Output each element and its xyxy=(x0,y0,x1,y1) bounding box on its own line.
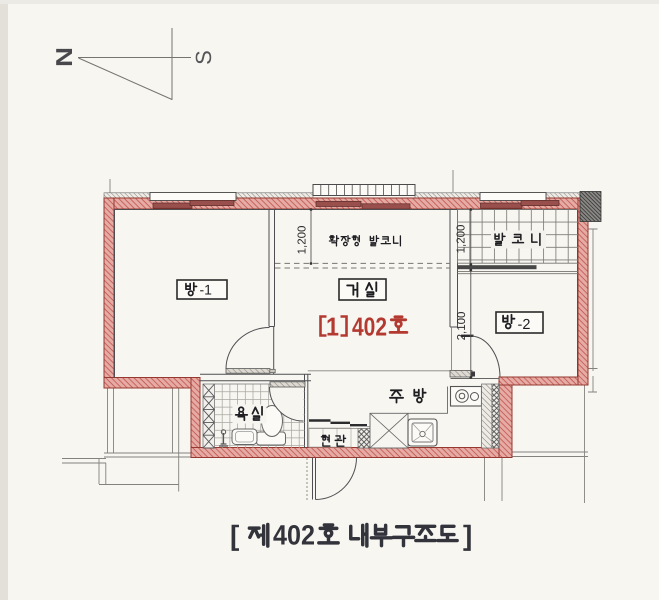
svg-text:1: 1 xyxy=(326,312,339,342)
svg-text:-1: -1 xyxy=(200,282,213,298)
svg-text:1,200: 1,200 xyxy=(297,226,309,255)
svg-text:[: [ xyxy=(230,520,239,551)
svg-text:N: N xyxy=(51,47,77,67)
svg-text:402: 402 xyxy=(273,520,315,551)
svg-text:402: 402 xyxy=(352,312,387,342)
svg-text:S: S xyxy=(191,50,216,65)
svg-text:-2: -2 xyxy=(518,317,531,333)
svg-text:1,200: 1,200 xyxy=(456,225,468,254)
svg-text:]: ] xyxy=(463,520,472,551)
svg-text:2,100: 2,100 xyxy=(456,312,468,341)
